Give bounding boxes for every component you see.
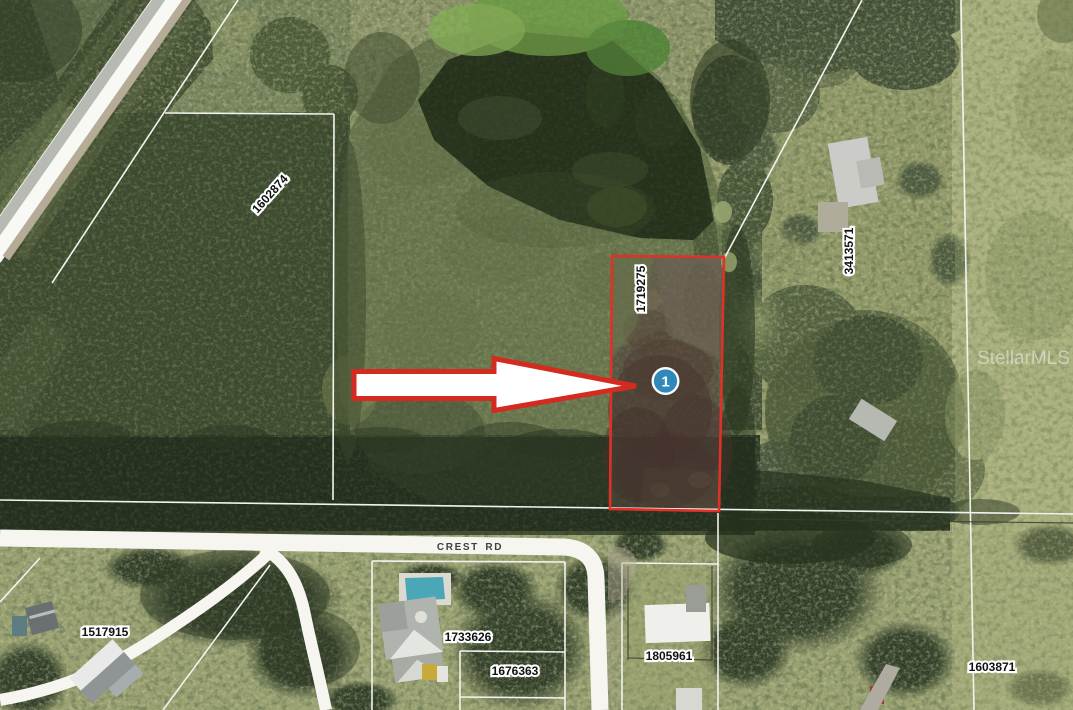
svg-text:1: 1 [661, 374, 669, 391]
svg-text:1517915: 1517915 [82, 625, 129, 639]
svg-text:3413571: 3413571 [842, 227, 856, 274]
svg-text:1733626: 1733626 [445, 630, 492, 644]
svg-text:1676363: 1676363 [492, 664, 539, 678]
svg-text:1805961: 1805961 [646, 649, 693, 663]
svg-text:1603871: 1603871 [969, 660, 1016, 674]
svg-text:CREST RD: CREST RD [437, 542, 503, 553]
svg-text:1719275: 1719275 [634, 265, 648, 312]
svg-text:StellarMLS: StellarMLS [977, 348, 1070, 369]
